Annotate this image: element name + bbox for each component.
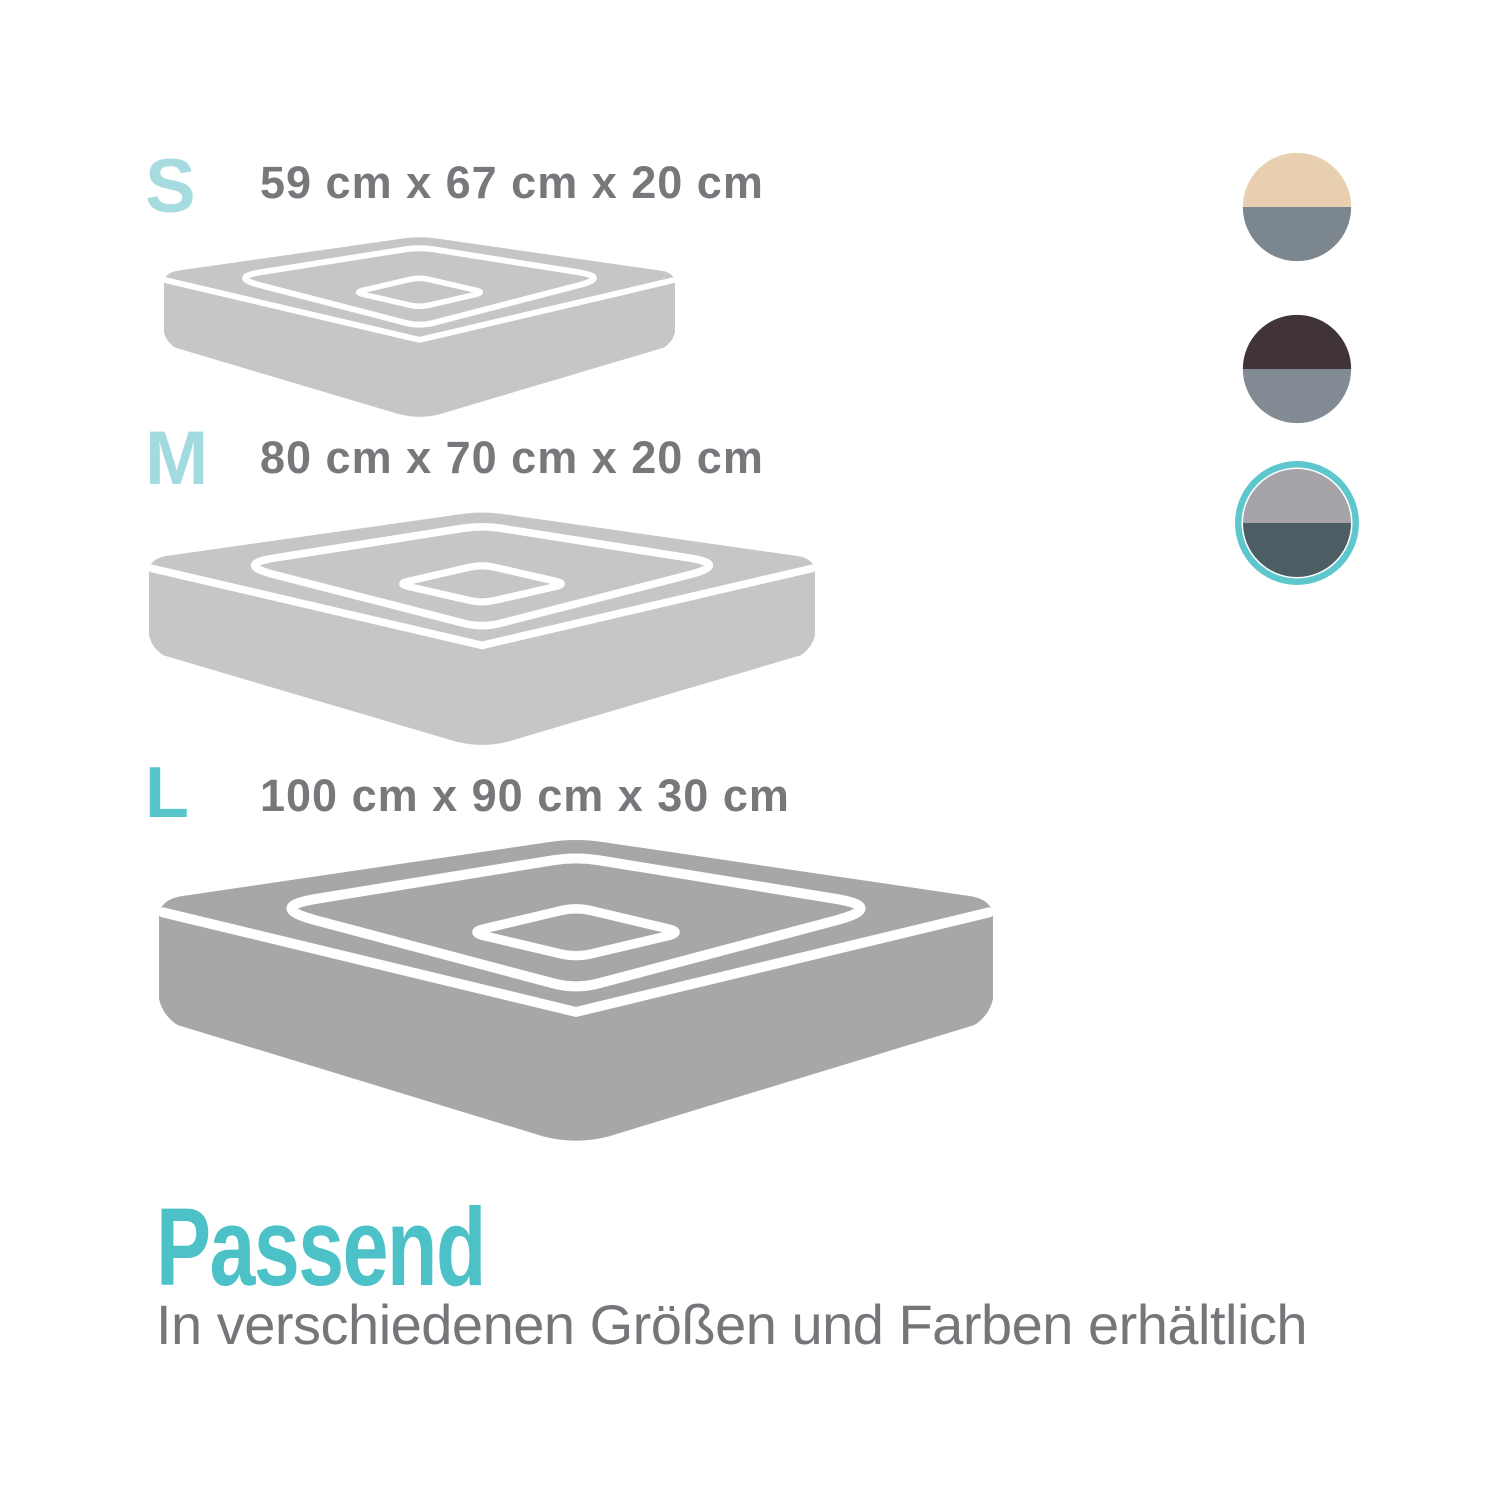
color-swatch-lightgray-slate-selected[interactable] <box>1233 459 1361 587</box>
swatch-top-half <box>1243 153 1351 207</box>
footer-title: Passend <box>156 1193 485 1303</box>
size-label-l: L <box>145 757 189 829</box>
bed-illustration-s <box>164 236 675 420</box>
size-label-s: S <box>145 149 196 225</box>
swatch-bottom-half <box>1243 369 1351 423</box>
color-swatch-beige-gray[interactable] <box>1240 150 1354 264</box>
bed-illustration-l <box>159 838 993 1146</box>
swatch-bottom-half <box>1243 207 1351 261</box>
size-dimensions-m: 80 cm x 70 cm x 20 cm <box>260 435 764 480</box>
size-label-m: M <box>145 421 208 497</box>
color-swatch-darkbrown-gray[interactable] <box>1240 312 1354 426</box>
size-dimensions-l: 100 cm x 90 cm x 30 cm <box>260 773 790 818</box>
swatch-top-half <box>1243 315 1351 369</box>
size-dimensions-s: 59 cm x 67 cm x 20 cm <box>260 160 764 205</box>
footer-subtitle: In verschiedenen Größen und Farben erhäl… <box>156 1297 1307 1353</box>
size-infographic: S 59 cm x 67 cm x 20 cm M 80 cm x 70 cm … <box>0 0 1500 1500</box>
bed-illustration-m <box>149 511 815 749</box>
